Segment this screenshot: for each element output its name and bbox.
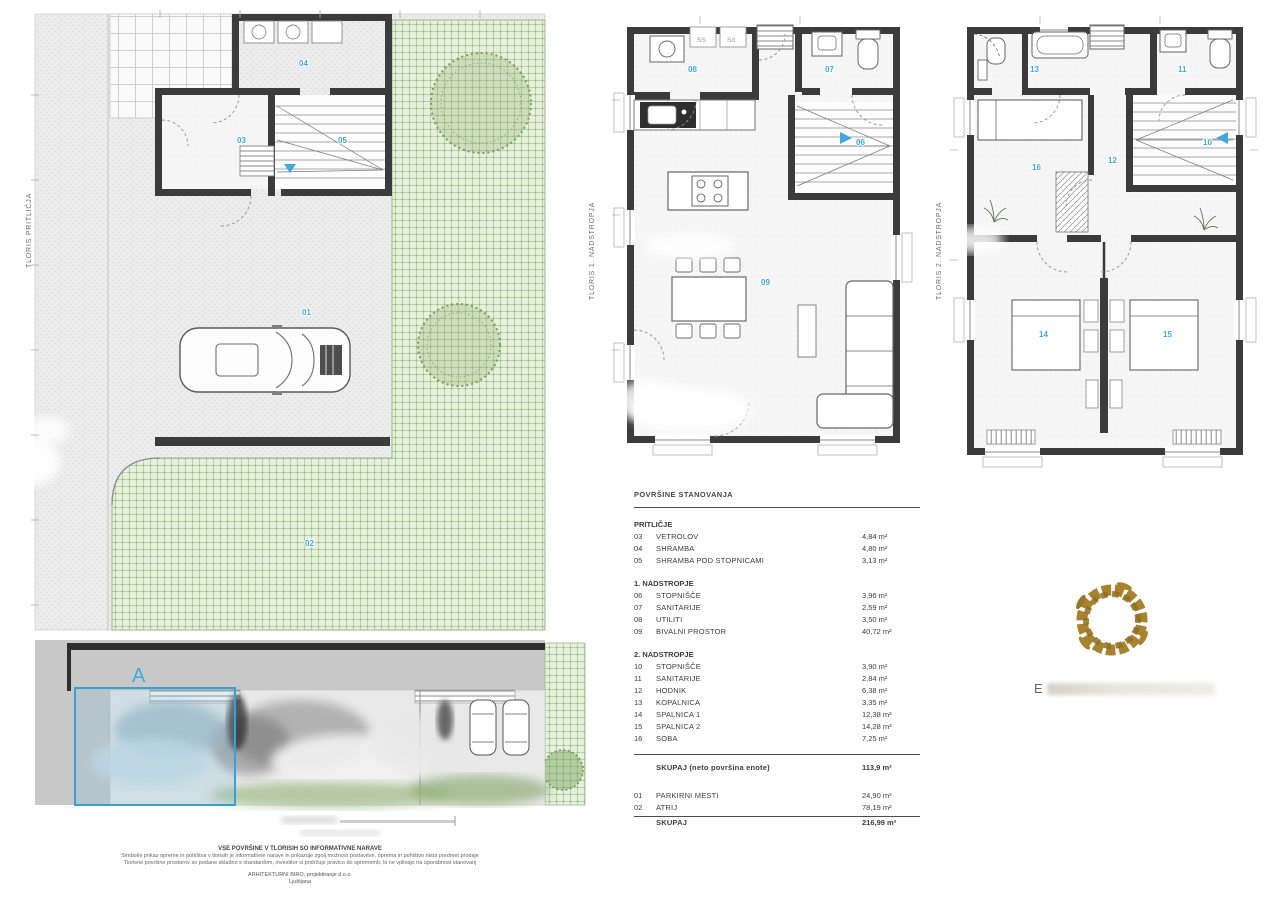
courtyard-wall <box>155 437 390 446</box>
room-label-07: 07 <box>825 65 834 74</box>
bed <box>978 100 1082 140</box>
room-label-11: 11 <box>1178 65 1187 74</box>
footnote-line: Ljubljana <box>60 879 540 886</box>
footnote-line: Tlorisne površine prostorov so podane sk… <box>60 860 540 867</box>
logo: E <box>1040 570 1240 705</box>
section-heading: PRITLIČJE <box>634 519 920 531</box>
second-floor-plan: 10 11 12 13 14 15 16 TLORIS 2. NADSTROPJ… <box>936 16 1258 467</box>
car-icon <box>180 326 350 394</box>
area-row: 15SPALNICA 214,28 m² <box>634 721 920 733</box>
room-label-15: 15 <box>1163 330 1172 339</box>
area-row: 09BIVALNI PROSTOR40,72 m² <box>634 626 920 638</box>
sink-icon <box>648 106 676 124</box>
footnotes: VSE POVRŠINE V TLORISIH SO INFORMATIVNE … <box>60 845 540 886</box>
area-row: 08UTILITI3,50 m² <box>634 614 920 626</box>
appliance-label-sd: Sd <box>727 37 735 44</box>
stove-icon <box>692 176 728 206</box>
section-exterior: 01PARKIRNI MESTI24,90 m² 02ATRIJ78,19 m² <box>634 790 920 814</box>
area-row: 12HODNIK6,38 m² <box>634 685 920 697</box>
area-table-title: POVRŠINE STANOVANJA <box>634 490 920 500</box>
total-row: SKUPAJ 216,99 m² <box>634 817 920 829</box>
first-floor-stairs <box>795 102 893 193</box>
unit-a-label: A <box>132 665 146 687</box>
logo-visible-letter: E <box>1034 681 1043 696</box>
area-row: 13KOPALNICA3,35 m² <box>634 697 920 709</box>
site-plan: A <box>35 640 585 836</box>
area-row: 06STOPNIŠČE3,96 m² <box>634 590 920 602</box>
second-plan-title: TLORIS 2. NADSTROPJA <box>936 202 943 300</box>
area-row: 14SPALNICA 112,38 m² <box>634 709 920 721</box>
section-second: 2. NADSTROPJE 10STOPNIŠČE3,90 m² 11SANIT… <box>634 649 920 745</box>
room-label-03: 03 <box>237 136 246 145</box>
footnote-line: Simbolni prikaz opreme in pohištva v tlo… <box>60 853 540 860</box>
table-rule <box>634 754 920 755</box>
room-label-13: 13 <box>1030 65 1039 74</box>
ground-plan-title: TLORIS PRITLIČJA <box>24 193 33 268</box>
first-floor-plan: SS Sd 06 07 08 09 TLORIS 1. NADSTROPJA <box>589 16 912 455</box>
kitchen-island <box>668 172 748 210</box>
room-label-16: 16 <box>1032 163 1041 172</box>
dining-table <box>672 258 746 338</box>
area-row: 07SANITARIJE2,59 m² <box>634 602 920 614</box>
logo-name-row: E <box>1034 681 1240 696</box>
area-row: 05SHRAMBA POD STOPNICAMI3,13 m² <box>634 555 920 567</box>
tree-icon <box>543 750 583 790</box>
radiator <box>1173 430 1221 444</box>
area-row: 16SOBA7,25 m² <box>634 733 920 745</box>
tree-icon <box>418 304 500 386</box>
logo-blurred-text <box>1047 683 1215 695</box>
first-plan-title: TLORIS 1. NADSTROPJA <box>589 202 596 300</box>
storage-shelves <box>244 21 342 43</box>
area-row: 11SANITARIJE2,84 m² <box>634 673 920 685</box>
subtotal-row: SKUPAJ (neto površina enote) 113,9 m² <box>634 762 920 774</box>
room-label-10: 10 <box>1203 138 1212 147</box>
room-label-14: 14 <box>1039 330 1048 339</box>
area-table: POVRŠINE STANOVANJA PRITLIČJE 03VETROLOV… <box>634 490 920 829</box>
room-label-06: 06 <box>856 138 865 147</box>
area-row: 03VETROLOV4,84 m² <box>634 531 920 543</box>
room-label-08: 08 <box>688 65 697 74</box>
wc-icon <box>858 39 878 69</box>
washer-icon <box>650 36 684 62</box>
radiator <box>987 430 1035 444</box>
section-ground: PRITLIČJE 03VETROLOV4,84 m² 04SHRAMBA4,8… <box>634 519 920 567</box>
section-heading: 2. NADSTROPJE <box>634 649 920 661</box>
room-label-05: 05 <box>338 136 347 145</box>
room-label-09: 09 <box>761 278 770 287</box>
area-row: 02ATRIJ78,19 m² <box>634 802 920 814</box>
area-row: 04SHRAMBA4,80 m² <box>634 543 920 555</box>
appliance-label-ss: SS <box>697 37 706 44</box>
unit-a-outline <box>75 688 235 805</box>
wardrobe <box>1056 172 1088 232</box>
footnote-line: ARHITEKTURNI BIRO, projektiranje d.o.o. <box>60 872 540 879</box>
section-heading: 1. NADSTROPJE <box>634 578 920 590</box>
area-row: 01PARKIRNI MESTI24,90 m² <box>634 790 920 802</box>
section-first: 1. NADSTROPJE 06STOPNIŠČE3,96 m² 07SANIT… <box>634 578 920 638</box>
scale-bar <box>340 820 455 823</box>
laurel-wreath-icon <box>1040 570 1200 670</box>
kitchen-counter <box>634 100 755 130</box>
area-row: 10STOPNIŠČE3,90 m² <box>634 661 920 673</box>
console-table <box>798 305 816 357</box>
room-label-04: 04 <box>299 59 308 68</box>
room-label-02: 02 <box>305 539 314 548</box>
second-floor-stairs <box>1133 95 1236 185</box>
wc-icon <box>1210 39 1230 68</box>
table-rule <box>634 507 920 508</box>
footnote-line: VSE POVRŠINE V TLORISIH SO INFORMATIVNE … <box>60 845 540 853</box>
wc-icon <box>987 38 1005 64</box>
room-label-12: 12 <box>1108 156 1117 165</box>
room-label-01: 01 <box>302 308 311 317</box>
ground-floor-plan: 01 02 03 04 05 TLORIS PRITLIČJA <box>0 10 545 630</box>
tree-icon <box>431 53 531 153</box>
